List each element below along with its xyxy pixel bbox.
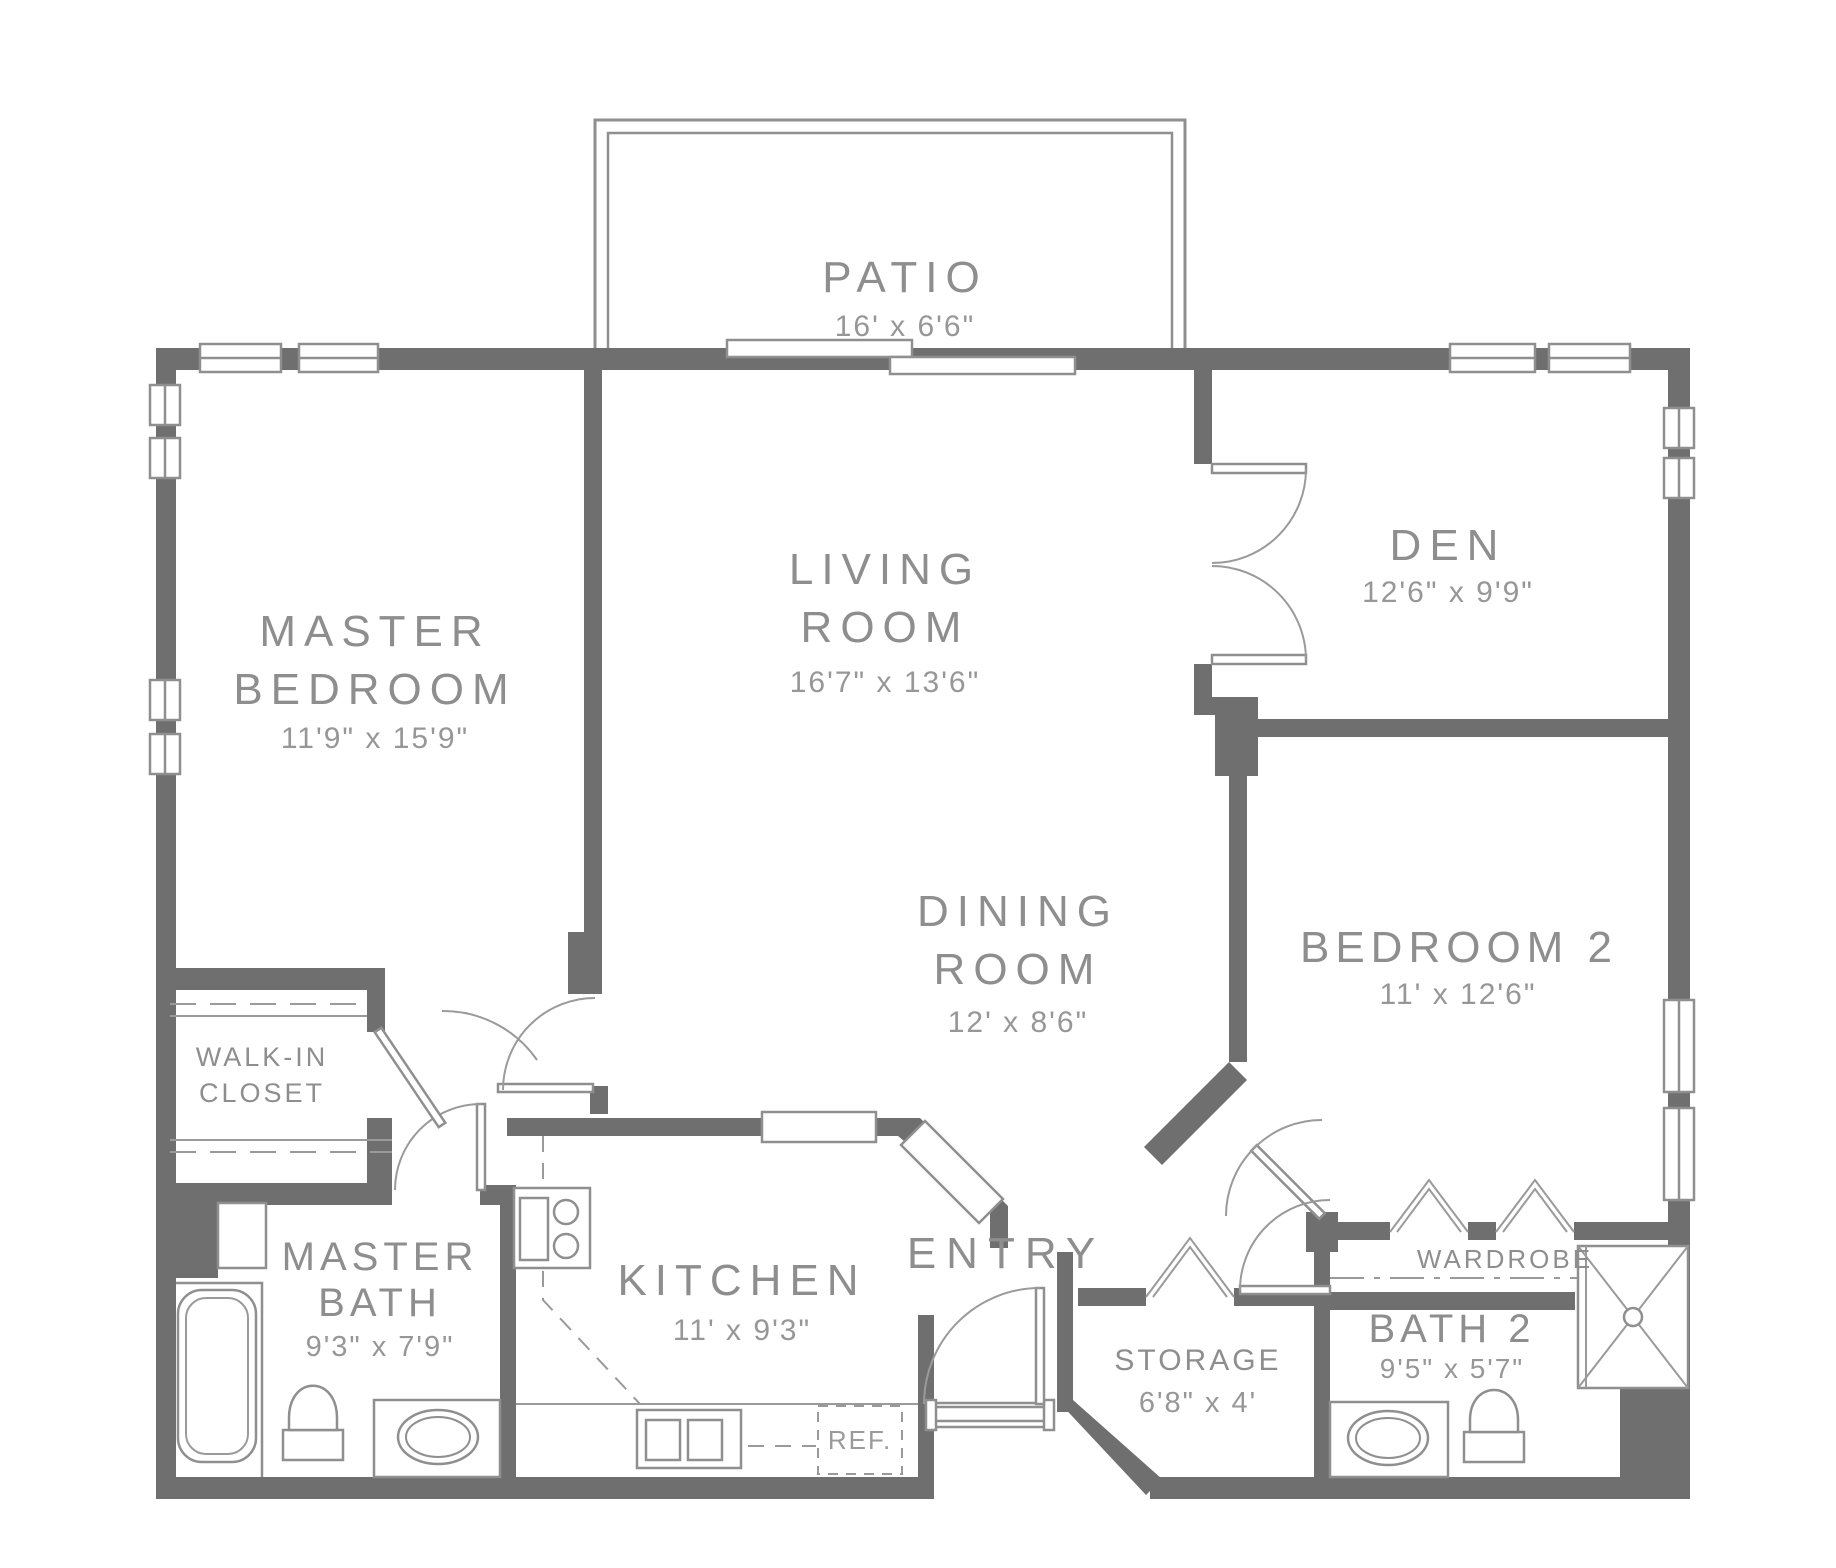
floor-plan-drawing: PATIO 16' x 6'6" MASTER BEDROOM 11'9" x …	[0, 0, 1836, 1568]
wall-den-jog	[1194, 697, 1258, 715]
shower-icon	[1578, 1246, 1688, 1388]
walk-in-closet-door	[375, 1011, 537, 1127]
wall-closet-bottom	[156, 1183, 392, 1205]
window	[299, 344, 378, 372]
wall-mbr-living	[584, 370, 602, 932]
bath2-label: BATH 2	[1368, 1307, 1535, 1351]
master-bath-label-2: BATH	[318, 1281, 442, 1325]
patio-dims: 16' x 6'6"	[835, 310, 976, 343]
storage-dims: 6'8" x 4'	[1139, 1387, 1257, 1419]
window	[1664, 1000, 1694, 1092]
window	[200, 344, 281, 372]
hall-door	[498, 998, 595, 1092]
bedroom2-label: BEDROOM 2	[1300, 923, 1618, 972]
kitchen-label: KITCHEN	[617, 1256, 866, 1305]
window	[150, 385, 180, 425]
master-bath-label-1: MASTER	[282, 1235, 479, 1279]
window	[150, 680, 180, 720]
vanity-sink-icon	[1330, 1402, 1448, 1477]
window	[1664, 1108, 1694, 1200]
wall-left	[156, 348, 176, 1499]
bedroom2-door	[1226, 1120, 1325, 1219]
living-room-label-2: ROOM	[801, 603, 970, 652]
wall-bath2-left	[1314, 1240, 1330, 1477]
wall-kitchen-top	[507, 1118, 762, 1136]
room-labels: PATIO 16' x 6'6" MASTER BEDROOM 11'9" x …	[196, 253, 1618, 1455]
master-bedroom-label-1: MASTER	[259, 607, 490, 656]
wall-wardrobe-top-a	[1326, 1222, 1390, 1240]
wall-corner-block	[1620, 1388, 1690, 1477]
window	[150, 734, 180, 774]
window	[1450, 344, 1535, 372]
wall-dining-bedroom2	[1229, 737, 1247, 1062]
walk-in-closet-label-2: CLOSET	[199, 1078, 325, 1108]
bathtub-icon	[178, 1290, 256, 1462]
den-label: DEN	[1390, 521, 1507, 570]
wall-closet-right	[367, 990, 385, 1032]
window	[1549, 344, 1630, 372]
linen-niche	[218, 1203, 266, 1268]
wall-wardrobe-top-c	[1574, 1222, 1668, 1240]
wall-bottom-left	[156, 1477, 934, 1499]
wall-bottom-right	[1150, 1477, 1690, 1499]
window	[150, 438, 180, 478]
bath2-dims: 9'5" x 5'7"	[1380, 1353, 1524, 1384]
wall-mbath-block	[160, 1203, 218, 1278]
bedroom2-dims: 11' x 12'6"	[1380, 978, 1537, 1011]
wardrobe-label: WARDROBE	[1417, 1244, 1593, 1274]
master-bath-dims: 9'3" x 7'9"	[306, 1331, 455, 1363]
wall-wardrobe-top-b	[1468, 1222, 1496, 1240]
walk-in-closet-label-1: WALK-IN	[196, 1042, 329, 1072]
entry-door	[924, 1288, 1054, 1430]
wall-den-bottom	[1247, 719, 1690, 737]
living-room-label-1: LIVING	[789, 545, 981, 594]
windows	[150, 344, 1694, 1200]
wall-dining-diagonal	[1144, 1062, 1247, 1165]
living-room-dims: 16'7" x 13'6"	[790, 666, 981, 699]
refrigerator-label: REF.	[828, 1425, 892, 1455]
wall-mbr-living-end-block	[568, 932, 602, 994]
patio-label: PATIO	[822, 253, 988, 302]
den-french-doors	[1212, 464, 1306, 664]
wall-storage-top-a	[1078, 1288, 1146, 1306]
dining-room-label-2: ROOM	[934, 945, 1103, 994]
kitchen-dims: 11' x 9'3"	[673, 1314, 811, 1347]
kitchen-sink-icon	[637, 1410, 741, 1468]
dining-room-label-1: DINING	[917, 887, 1119, 936]
den-dims: 12'6" x 9'9"	[1362, 576, 1534, 609]
wall-den-upper	[1194, 370, 1212, 464]
floor-plan: PATIO 16' x 6'6" MASTER BEDROOM 11'9" x …	[0, 0, 1836, 1568]
window	[1664, 408, 1694, 448]
toilet-icon	[1464, 1390, 1524, 1462]
dining-room-dims: 12' x 8'6"	[948, 1006, 1089, 1039]
master-bedroom-label-2: BEDROOM	[233, 665, 516, 714]
window	[1664, 458, 1694, 498]
wall-mbr-bottom	[156, 968, 385, 990]
vanity-sink-icon	[374, 1400, 500, 1477]
toilet-icon	[283, 1386, 343, 1460]
storage-bifold-door	[1146, 1238, 1234, 1297]
entry-label: ENTRY	[907, 1229, 1105, 1278]
storage-label: STORAGE	[1114, 1344, 1281, 1377]
stove-icon	[514, 1188, 590, 1268]
master-bedroom-dims: 11'9" x 15'9"	[281, 722, 469, 755]
